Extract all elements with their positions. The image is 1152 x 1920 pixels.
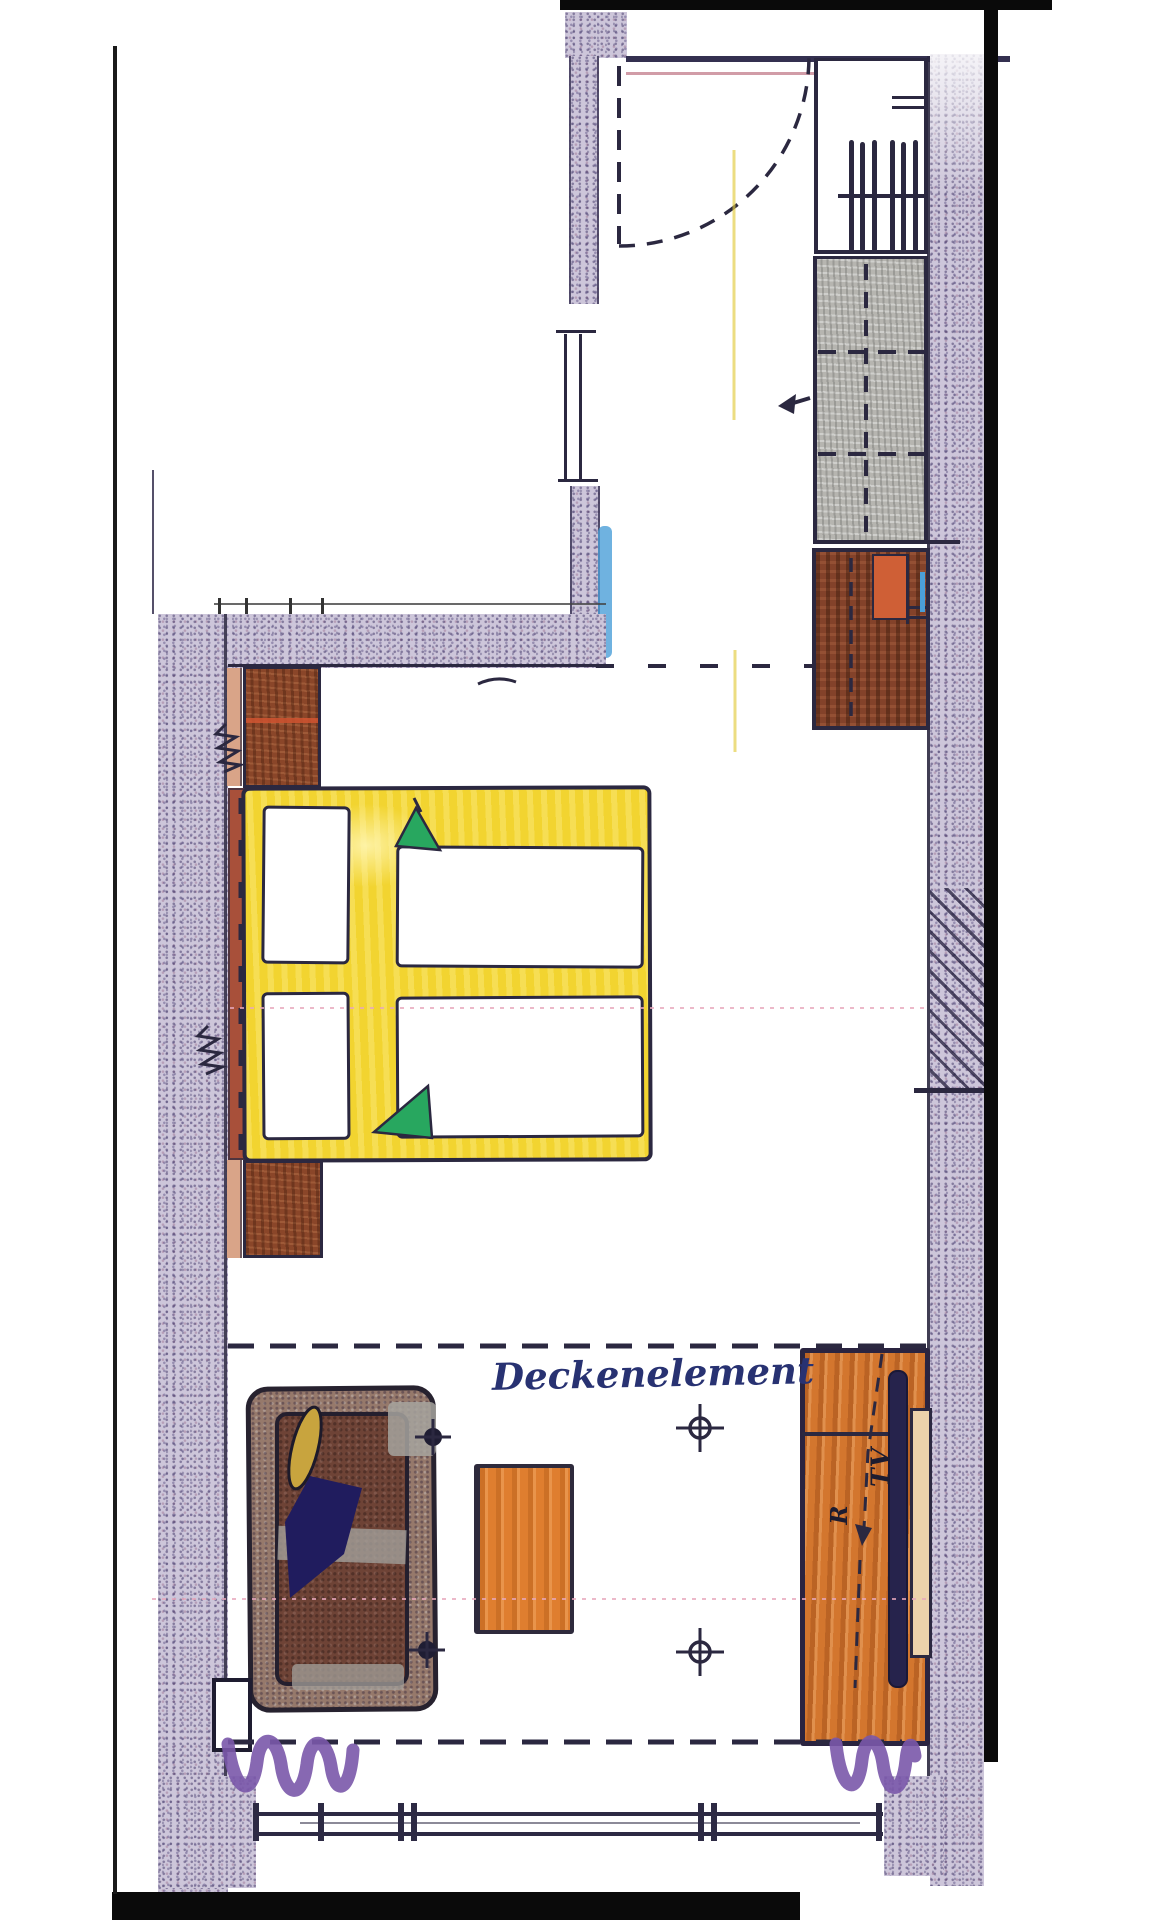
- window-line-inner: [253, 1832, 883, 1836]
- window-post-3: [398, 1803, 404, 1841]
- scan-band-right: [984, 6, 998, 1762]
- hand-drawn-floor-plan: Deckenelement TV R: [0, 0, 1152, 1920]
- tv-leader-dash-2: [855, 1560, 860, 1688]
- socket-zigzag-lower: [198, 1026, 222, 1074]
- window-post-2: [318, 1803, 324, 1841]
- shelf-label: R: [826, 1500, 852, 1530]
- folded-corner-upper: [396, 808, 440, 850]
- linework-overlay: [0, 0, 1152, 1920]
- scan-band-top: [560, 0, 1052, 10]
- tv-leader-arrow: [855, 1524, 872, 1546]
- folded-corner-lower: [374, 1086, 432, 1138]
- window-post-6: [711, 1803, 717, 1841]
- tv-label: TV: [866, 1444, 896, 1490]
- curtain-right: [836, 1742, 915, 1788]
- window-line-outer: [253, 1812, 883, 1816]
- scan-band-bottom: [112, 1892, 800, 1920]
- spotlight-upper: [415, 1419, 451, 1455]
- curtain-left: [228, 1741, 353, 1790]
- window-post-4: [411, 1803, 417, 1841]
- socket-zigzag-upper: [216, 724, 240, 772]
- ceiling-element-label: Deckenelement: [492, 1349, 773, 1399]
- pen-curve-mark: [478, 679, 516, 684]
- tv-leader-dash: [864, 1354, 882, 1528]
- window-post-5: [698, 1803, 704, 1841]
- window-line-mid: [300, 1822, 860, 1824]
- ceiling-light-lower: [676, 1628, 724, 1676]
- direction-arrow-head: [778, 394, 796, 414]
- door-swing-arc: [619, 56, 809, 246]
- sofa-blue-throw: [285, 1476, 362, 1598]
- window-post-1: [253, 1803, 259, 1841]
- window-post-7: [876, 1803, 882, 1841]
- ceiling-light-upper: [676, 1404, 724, 1452]
- spotlight-lower: [409, 1632, 445, 1668]
- scan-line-left: [113, 46, 117, 1894]
